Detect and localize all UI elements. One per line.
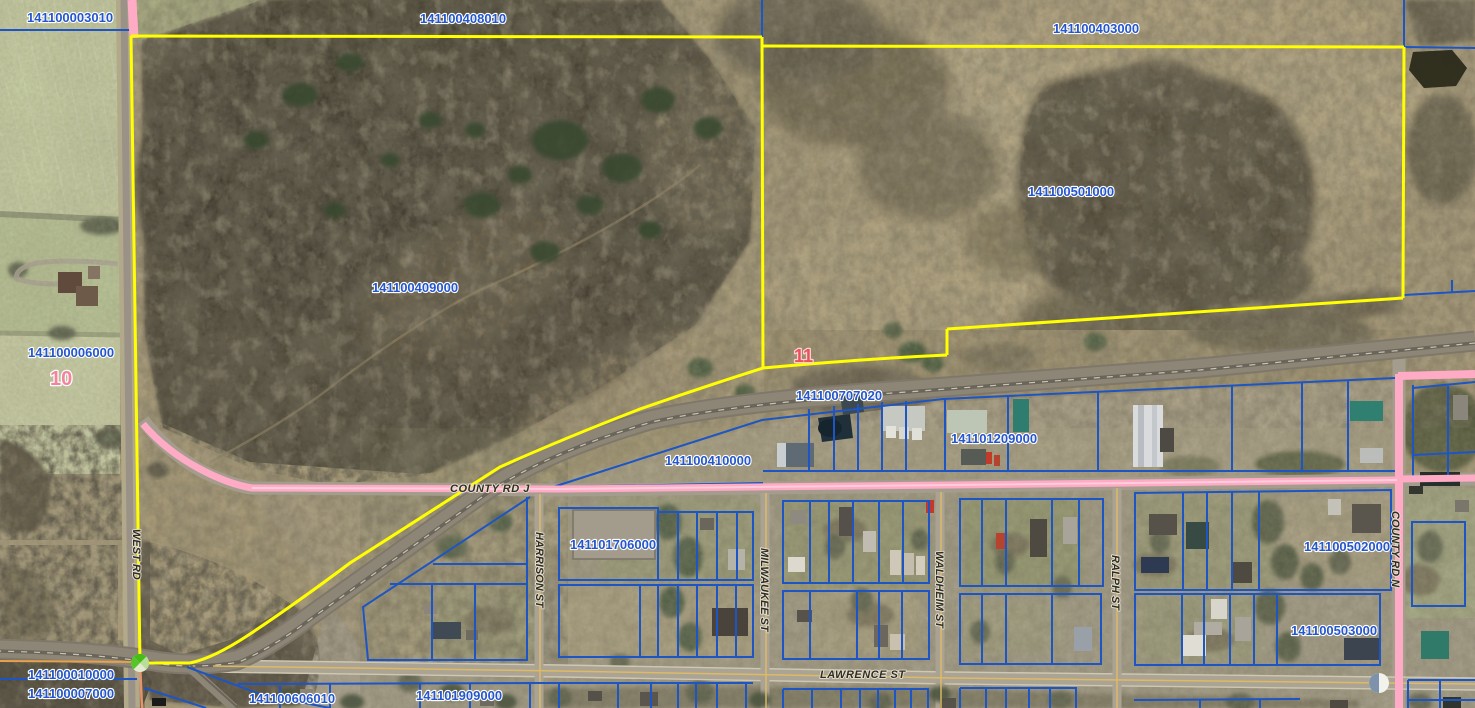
- svg-text:141101706000: 141101706000: [570, 537, 656, 552]
- svg-text:141100006000: 141100006000: [28, 345, 114, 360]
- svg-text:141100501000: 141100501000: [1028, 184, 1114, 199]
- svg-text:LAWRENCE ST: LAWRENCE ST: [820, 669, 906, 681]
- svg-text:COUNTY RD N: COUNTY RD N: [1389, 511, 1401, 588]
- svg-text:11: 11: [794, 346, 813, 366]
- svg-text:141100403000: 141100403000: [1053, 21, 1139, 36]
- svg-text:10: 10: [50, 368, 72, 390]
- svg-text:141100502000: 141100502000: [1304, 539, 1390, 554]
- svg-text:141100409000: 141100409000: [372, 280, 458, 295]
- svg-text:141101209000: 141101209000: [951, 431, 1037, 446]
- svg-text:WALDHEIM ST: WALDHEIM ST: [933, 551, 945, 629]
- svg-text:141100010000: 141100010000: [28, 667, 114, 682]
- svg-text:RALPH ST: RALPH ST: [1109, 555, 1121, 611]
- svg-text:141100410000: 141100410000: [665, 453, 751, 468]
- svg-text:141100503000: 141100503000: [1291, 623, 1377, 638]
- svg-text:WEST RD: WEST RD: [130, 529, 142, 580]
- svg-text:141101909000: 141101909000: [416, 688, 502, 703]
- svg-text:141100408010: 141100408010: [420, 11, 506, 26]
- svg-text:141100003010: 141100003010: [27, 10, 113, 25]
- svg-text:HARRISON ST: HARRISON ST: [533, 532, 545, 609]
- svg-text:COUNTY RD J: COUNTY RD J: [450, 483, 530, 495]
- svg-text:MILWAUKEE ST: MILWAUKEE ST: [758, 548, 770, 633]
- svg-text:141100007000: 141100007000: [28, 686, 114, 701]
- svg-text:141100707020: 141100707020: [796, 388, 882, 403]
- svg-text:141100606010: 141100606010: [249, 691, 335, 706]
